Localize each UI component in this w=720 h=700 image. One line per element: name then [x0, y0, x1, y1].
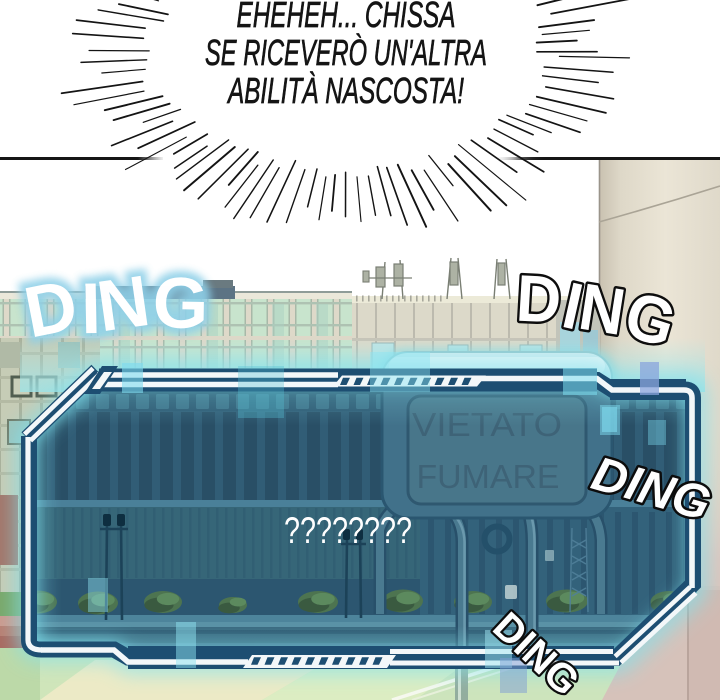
svg-text:FUMARE: FUMARE [417, 458, 560, 495]
svg-text:ABILITÀ NASCOSTA!: ABILITÀ NASCOSTA! [227, 70, 464, 111]
svg-text:SE RICEVERÒ UN'ALTRA: SE RICEVERÒ UN'ALTRA [205, 32, 487, 73]
svg-text:????????: ???????? [284, 510, 412, 551]
svg-text:EHEHEH... CHISSA: EHEHEH... CHISSA [237, 0, 456, 35]
